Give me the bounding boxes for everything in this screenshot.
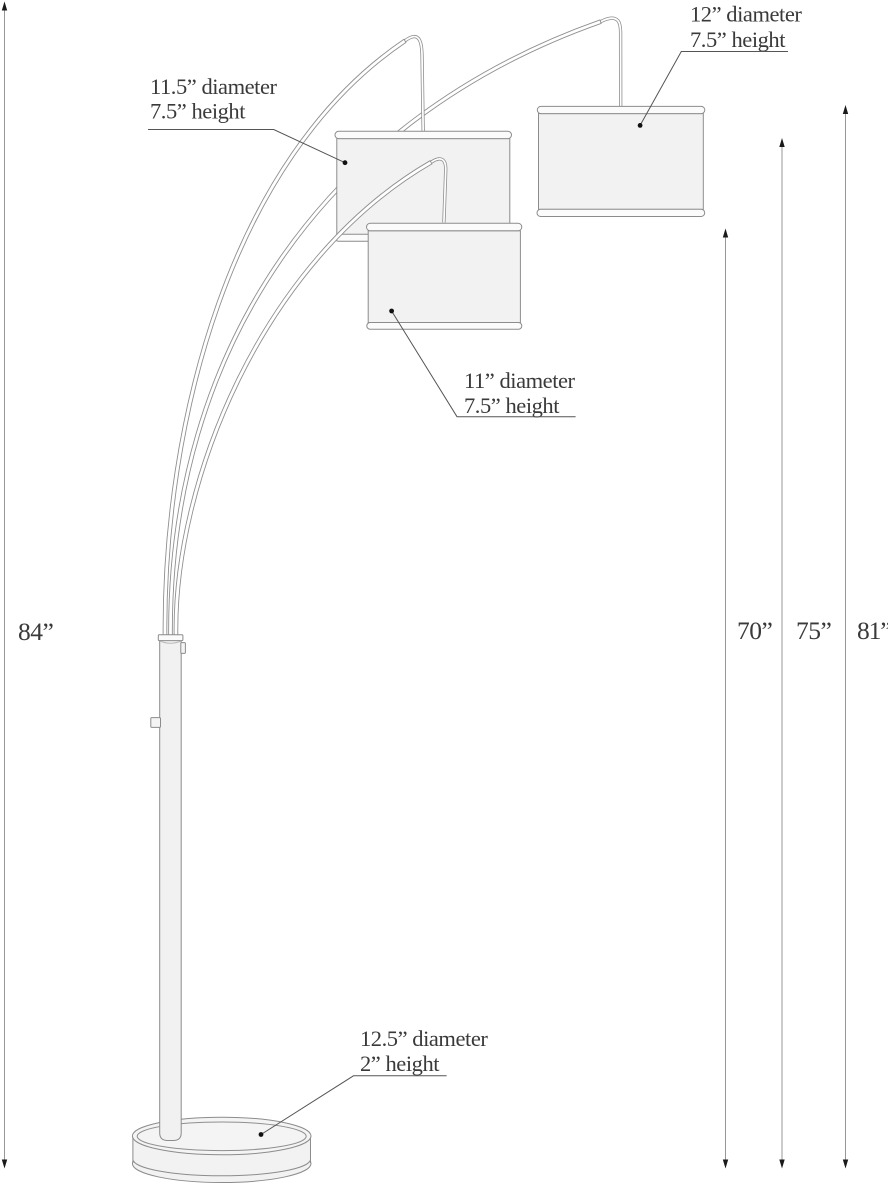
- svg-text:81”: 81”: [857, 616, 888, 645]
- svg-text:12.5” diameter: 12.5” diameter: [360, 1026, 488, 1051]
- svg-text:84”: 84”: [18, 617, 54, 646]
- svg-text:2” height: 2” height: [360, 1051, 440, 1076]
- svg-text:7.5” height: 7.5” height: [150, 99, 246, 124]
- svg-text:12” diameter: 12” diameter: [690, 2, 802, 27]
- svg-text:7.5” height: 7.5” height: [464, 393, 560, 418]
- svg-text:70”: 70”: [737, 616, 773, 645]
- svg-text:75”: 75”: [796, 616, 832, 645]
- svg-text:11.5” diameter: 11.5” diameter: [150, 74, 278, 99]
- svg-text:11” diameter: 11” diameter: [464, 368, 576, 393]
- svg-text:7.5” height: 7.5” height: [690, 27, 786, 52]
